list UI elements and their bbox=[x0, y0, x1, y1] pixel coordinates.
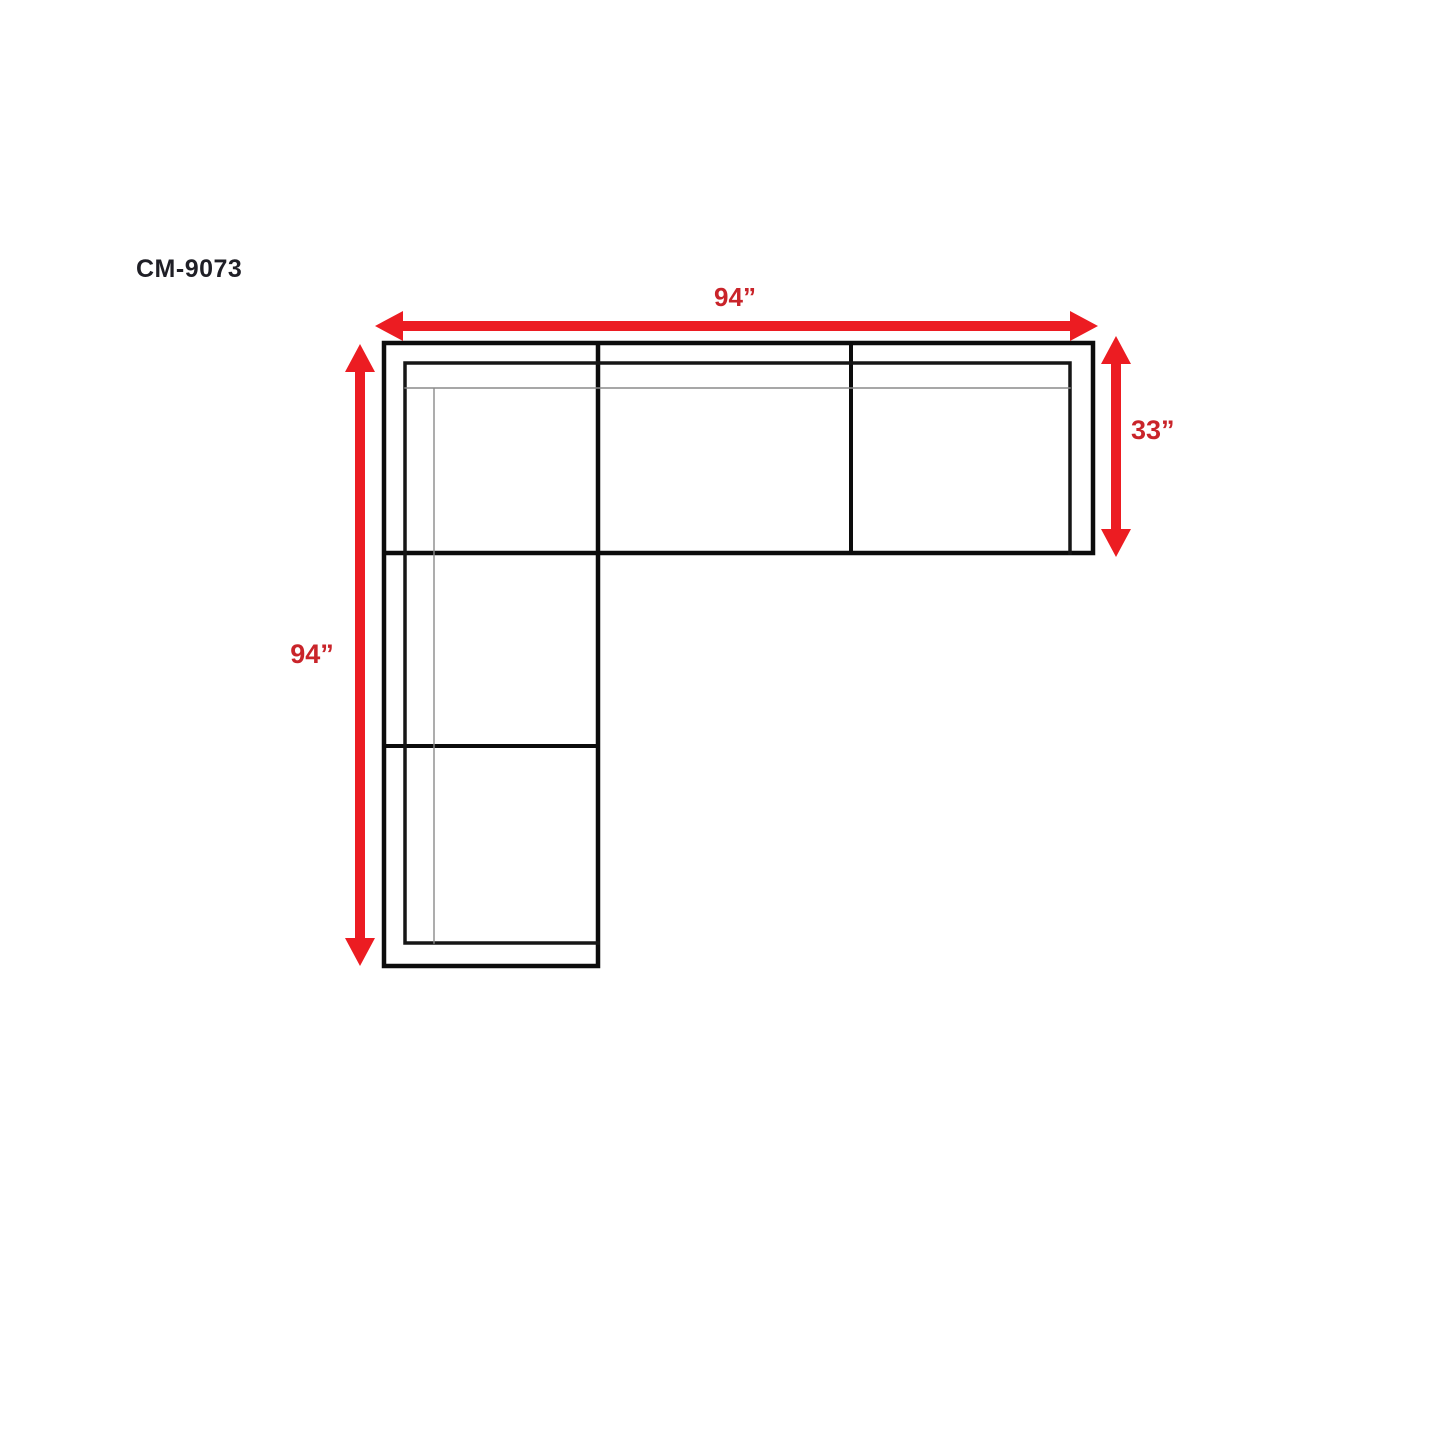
sofa-backrest-face-lines bbox=[405, 388, 1070, 943]
sofa-backrest-face-path bbox=[405, 388, 1070, 943]
depth-dimension-label: 33” bbox=[1131, 416, 1175, 446]
depth-dimension-arrow bbox=[1101, 336, 1131, 557]
sofa-divider-path bbox=[384, 343, 851, 746]
length-dimension-label: 94” bbox=[262, 640, 362, 670]
width-dimension-label: 94” bbox=[660, 283, 810, 312]
sofa-backrest-inner-lines bbox=[405, 363, 1070, 943]
model-number-label: CM-9073 bbox=[136, 256, 242, 284]
sofa-backrest-path bbox=[405, 363, 1070, 943]
sofa-section-divider-lines bbox=[384, 343, 851, 746]
sectional-sofa-diagram bbox=[0, 0, 1445, 1445]
width-dimension-arrow bbox=[375, 311, 1098, 341]
sofa-outer-path bbox=[384, 343, 1093, 966]
sofa-outer-outline bbox=[384, 343, 1093, 966]
dimension-diagram-page: CM-9073 94” 33” 94” bbox=[0, 0, 1445, 1445]
